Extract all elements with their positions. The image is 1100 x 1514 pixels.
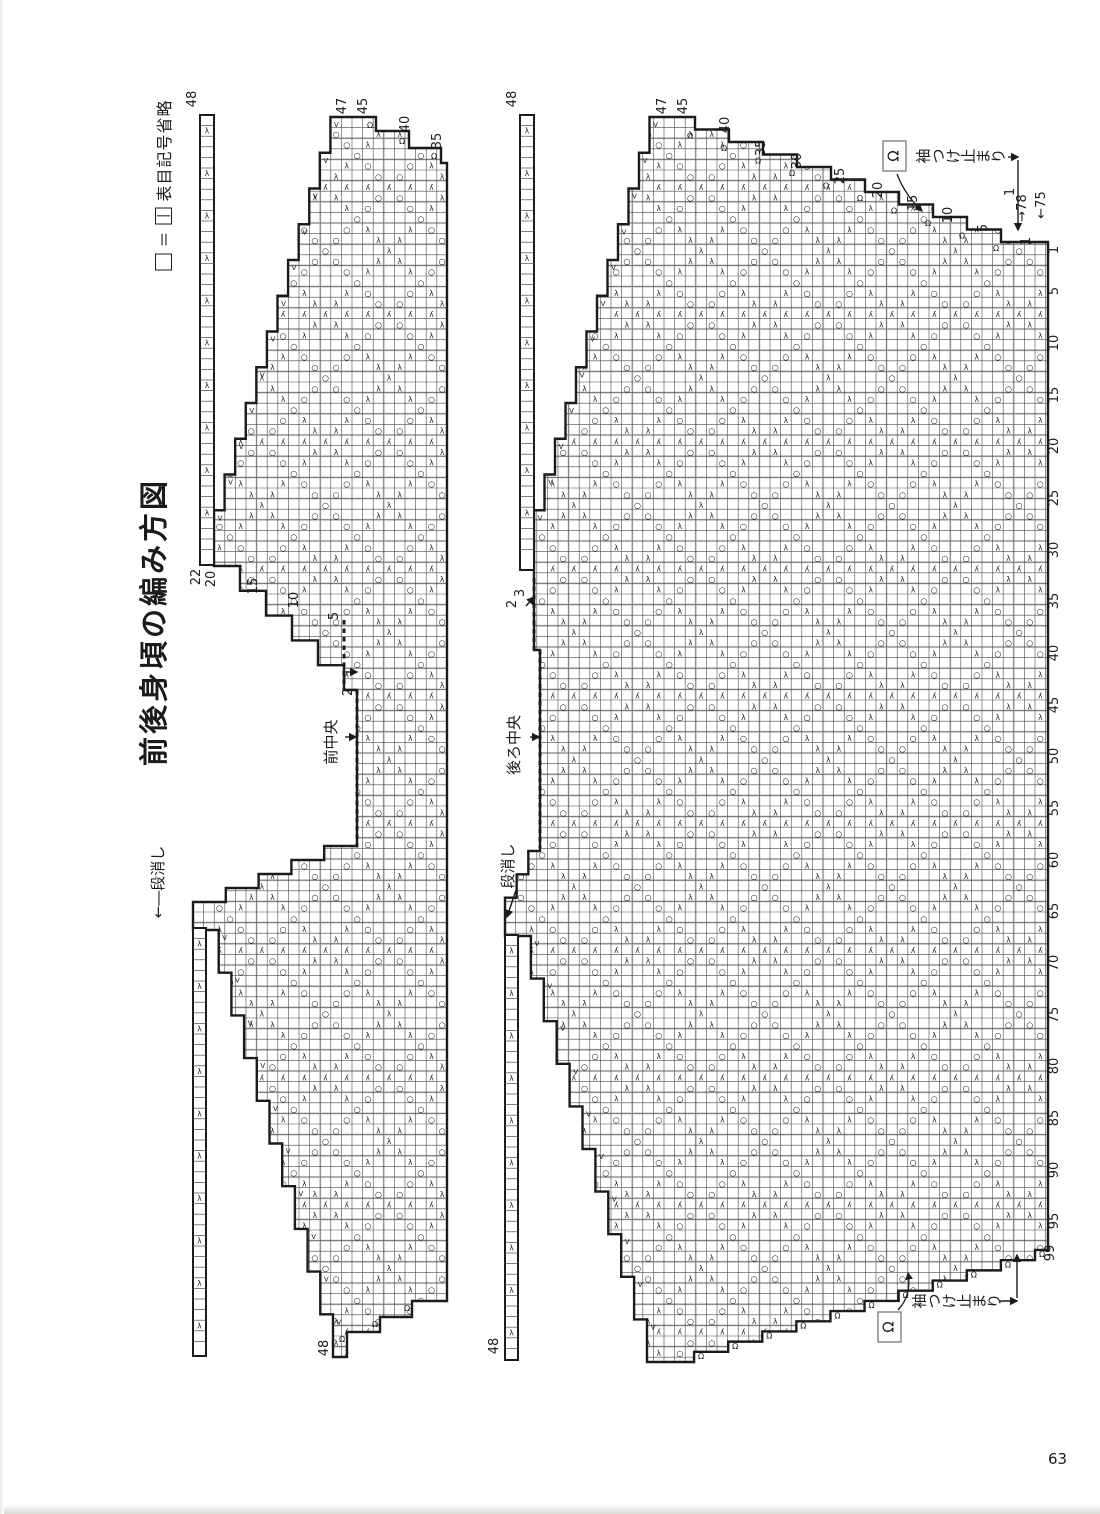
svg-text:λ: λ <box>688 872 693 881</box>
svg-text:λ: λ <box>207 1063 212 1072</box>
svg-text:λ: λ <box>688 257 693 266</box>
svg-text:λ: λ <box>932 904 937 913</box>
svg-text:λ: λ <box>1027 1338 1032 1347</box>
svg-text:λ: λ <box>344 1222 349 1231</box>
svg-text:○: ○ <box>1037 649 1044 658</box>
chart-number-label: 45 <box>356 98 371 115</box>
svg-text:○: ○ <box>963 681 970 690</box>
svg-text:○: ○ <box>1026 1126 1033 1135</box>
svg-text:○: ○ <box>290 406 297 415</box>
svg-text:ʎ: ʎ <box>1038 692 1043 701</box>
svg-text:○: ○ <box>920 1360 927 1369</box>
svg-text:λ: λ <box>249 384 254 393</box>
svg-text:ʎ: ʎ <box>635 565 640 574</box>
svg-text:λ: λ <box>561 512 566 521</box>
svg-text:λ: λ <box>561 893 566 902</box>
svg-text:○: ○ <box>751 745 758 754</box>
chart-number-label: 40 <box>718 117 733 134</box>
svg-text:○: ○ <box>740 225 747 234</box>
svg-text:λ: λ <box>614 798 619 807</box>
svg-text:λ: λ <box>953 501 958 510</box>
svg-text:ʎ: ʎ <box>408 819 413 828</box>
svg-text:ʎ: ʎ <box>217 183 222 192</box>
svg-text:○: ○ <box>417 660 424 669</box>
svg-text:○: ○ <box>354 406 361 415</box>
svg-text:○: ○ <box>645 384 652 393</box>
svg-text:○: ○ <box>528 777 535 786</box>
svg-text:○: ○ <box>973 543 980 552</box>
svg-text:λ: λ <box>911 967 916 976</box>
scan-edge-shadow <box>0 1504 1100 1514</box>
svg-text:○: ○ <box>216 141 223 150</box>
svg-text:λ: λ <box>964 512 969 521</box>
svg-text:ʎ: ʎ <box>508 310 513 319</box>
svg-text:○: ○ <box>539 342 546 351</box>
svg-text:○: ○ <box>719 1095 726 1104</box>
svg-text:○: ○ <box>719 543 726 552</box>
svg-text:○: ○ <box>888 755 895 764</box>
svg-text:ʎ: ʎ <box>868 565 873 574</box>
svg-text:○: ○ <box>899 490 906 499</box>
svg-text:λ: λ <box>625 1190 630 1199</box>
svg-text:λ: λ <box>943 1275 948 1284</box>
svg-text:○: ○ <box>963 321 970 330</box>
svg-text:λ: λ <box>709 363 714 372</box>
svg-text:○: ○ <box>1005 384 1012 393</box>
svg-text:ʎ: ʎ <box>699 310 704 319</box>
svg-text:ʎ: ʎ <box>868 437 873 446</box>
svg-text:ʎ: ʎ <box>366 1073 371 1082</box>
svg-text:ʎ: ʎ <box>656 1073 661 1082</box>
svg-text:λ: λ <box>784 967 789 976</box>
svg-text:○: ○ <box>364 1052 371 1061</box>
svg-text:ʎ: ʎ <box>911 183 916 192</box>
svg-text:ʎ: ʎ <box>550 1328 555 1337</box>
svg-text:λ: λ <box>964 490 969 499</box>
svg-text:○: ○ <box>645 766 652 775</box>
svg-text:○: ○ <box>1026 766 1033 775</box>
svg-text:○: ○ <box>517 893 524 902</box>
svg-text:○: ○ <box>931 1095 938 1104</box>
svg-text:○: ○ <box>846 840 853 849</box>
svg-text:○: ○ <box>343 353 350 362</box>
svg-text:ʎ: ʎ <box>614 310 619 319</box>
svg-text:λ: λ <box>699 755 704 764</box>
svg-text:λ: λ <box>815 872 820 881</box>
svg-text:○: ○ <box>248 1190 255 1199</box>
svg-text:λ: λ <box>1027 808 1032 817</box>
svg-text:○: ○ <box>439 1020 446 1029</box>
svg-text:○: ○ <box>248 1317 255 1326</box>
svg-text:λ: λ <box>302 162 307 171</box>
increase-mark: V <box>547 983 552 991</box>
svg-text:ʎ: ʎ <box>323 437 328 446</box>
svg-text:○: ○ <box>708 172 715 181</box>
svg-text:λ: λ <box>678 353 683 362</box>
chart-number-label: 65 <box>1047 903 1062 920</box>
svg-text:○: ○ <box>417 1105 424 1114</box>
svg-text:ʎ: ʎ <box>656 819 661 828</box>
svg-text:λ: λ <box>197 1067 202 1076</box>
svg-text:λ: λ <box>1027 936 1032 945</box>
svg-text:ʎ: ʎ <box>762 1201 767 1210</box>
svg-text:○: ○ <box>539 1169 546 1178</box>
svg-text:λ: λ <box>344 331 349 340</box>
svg-text:λ: λ <box>397 999 402 1008</box>
svg-text:λ: λ <box>720 1243 725 1252</box>
svg-text:λ: λ <box>879 957 884 966</box>
svg-text:○: ○ <box>301 904 308 913</box>
svg-text:λ: λ <box>646 427 651 436</box>
svg-text:○: ○ <box>729 1105 736 1114</box>
svg-text:λ: λ <box>678 1285 683 1294</box>
svg-text:λ: λ <box>943 1148 948 1157</box>
svg-text:λ: λ <box>614 925 619 934</box>
svg-text:○: ○ <box>1026 1020 1033 1029</box>
svg-text:λ: λ <box>837 766 842 775</box>
svg-text:○: ○ <box>687 575 694 584</box>
svg-text:λ: λ <box>249 1254 254 1263</box>
svg-text:λ: λ <box>900 830 905 839</box>
svg-text:λ: λ <box>302 840 307 849</box>
svg-text:λ: λ <box>826 119 831 128</box>
svg-text:ʎ: ʎ <box>366 692 371 701</box>
svg-text:○: ○ <box>899 872 906 881</box>
svg-text:○: ○ <box>857 914 864 923</box>
svg-text:λ: λ <box>525 127 530 136</box>
svg-text:○: ○ <box>311 1148 318 1157</box>
svg-text:λ: λ <box>281 480 286 489</box>
svg-text:○: ○ <box>793 660 800 669</box>
svg-text:ʎ: ʎ <box>238 1201 243 1210</box>
increase-mark: V <box>651 1323 656 1331</box>
svg-text:○: ○ <box>1026 872 1033 881</box>
svg-text:○: ○ <box>676 289 683 298</box>
svg-text:○: ○ <box>216 353 223 362</box>
svg-text:○: ○ <box>205 618 212 627</box>
svg-text:○: ○ <box>676 840 683 849</box>
svg-text:○: ○ <box>623 1148 630 1157</box>
svg-text:○: ○ <box>984 278 991 287</box>
svg-text:○: ○ <box>878 745 885 754</box>
svg-text:λ: λ <box>784 416 789 425</box>
svg-text:○: ○ <box>417 278 424 287</box>
svg-text:○: ○ <box>623 236 630 245</box>
svg-text:○: ○ <box>941 957 948 966</box>
svg-text:○: ○ <box>417 1232 424 1241</box>
svg-text:λ: λ <box>625 808 630 817</box>
svg-text:ʎ: ʎ <box>429 565 434 574</box>
svg-text:λ: λ <box>281 989 286 998</box>
svg-text:○: ○ <box>1037 1116 1044 1125</box>
svg-text:○: ○ <box>857 1296 864 1305</box>
svg-text:ʎ: ʎ <box>344 1201 349 1210</box>
svg-text:λ: λ <box>720 734 725 743</box>
svg-text:ʎ: ʎ <box>953 183 958 192</box>
svg-text:λ: λ <box>205 424 210 433</box>
svg-text:○: ○ <box>899 257 906 266</box>
svg-text:λ: λ <box>387 1264 392 1273</box>
svg-text:○: ○ <box>857 406 864 415</box>
svg-text:λ: λ <box>525 466 530 475</box>
svg-text:ʎ: ʎ <box>508 819 513 828</box>
svg-text:○: ○ <box>782 480 789 489</box>
svg-text:λ: λ <box>238 1031 243 1040</box>
svg-text:○: ○ <box>729 1232 736 1241</box>
svg-text:λ: λ <box>953 1264 958 1273</box>
svg-text:ʎ: ʎ <box>635 1328 640 1337</box>
svg-text:λ: λ <box>932 777 937 786</box>
svg-text:λ: λ <box>784 1222 789 1231</box>
svg-text:λ: λ <box>593 1116 598 1125</box>
svg-text:○: ○ <box>354 1042 361 1051</box>
svg-text:λ: λ <box>519 702 524 711</box>
svg-text:○: ○ <box>645 257 652 266</box>
bindoff-mark: Ω <box>789 169 795 178</box>
increase-mark: V <box>611 264 616 272</box>
svg-text:○: ○ <box>708 957 715 966</box>
svg-text:○: ○ <box>793 215 800 224</box>
svg-text:ʎ: ʎ <box>678 1328 683 1337</box>
svg-text:ʎ: ʎ <box>805 183 810 192</box>
svg-text:λ: λ <box>996 289 1001 298</box>
svg-text:λ: λ <box>646 702 651 711</box>
svg-text:ʎ: ʎ <box>238 819 243 828</box>
svg-text:○: ○ <box>205 766 212 775</box>
svg-text:λ: λ <box>1038 925 1043 934</box>
svg-text:○: ○ <box>973 671 980 680</box>
svg-text:○: ○ <box>899 1148 906 1157</box>
chart-number-label: 48 <box>185 91 200 108</box>
svg-text:○: ○ <box>613 353 620 362</box>
svg-text:○: ○ <box>602 1042 609 1051</box>
svg-text:λ: λ <box>656 586 661 595</box>
svg-text:○: ○ <box>687 1338 694 1347</box>
svg-text:○: ○ <box>984 724 991 733</box>
svg-text:○: ○ <box>857 1169 864 1178</box>
svg-text:λ: λ <box>217 1052 222 1061</box>
svg-text:ʎ: ʎ <box>826 819 831 828</box>
svg-text:○: ○ <box>814 830 821 839</box>
svg-text:○: ○ <box>814 427 821 436</box>
svg-text:○: ○ <box>1016 501 1023 510</box>
svg-text:λ: λ <box>408 1243 413 1252</box>
svg-text:λ: λ <box>344 459 349 468</box>
svg-text:○: ○ <box>333 384 340 393</box>
svg-text:○: ○ <box>941 1338 948 1347</box>
svg-text:○: ○ <box>237 416 244 425</box>
svg-text:○: ○ <box>1026 257 1033 266</box>
increase-mark: V <box>292 264 297 272</box>
svg-text:λ: λ <box>826 374 831 383</box>
svg-text:ʎ: ʎ <box>699 565 704 574</box>
svg-text:○: ○ <box>782 861 789 870</box>
svg-text:λ: λ <box>709 384 714 393</box>
increase-mark: V <box>311 1233 316 1241</box>
svg-text:λ: λ <box>625 1211 630 1220</box>
svg-text:○: ○ <box>984 406 991 415</box>
svg-text:ʎ: ʎ <box>217 1073 222 1082</box>
svg-text:ʎ: ʎ <box>847 437 852 446</box>
svg-text:λ: λ <box>440 702 445 711</box>
svg-text:λ: λ <box>974 268 979 277</box>
svg-text:○: ○ <box>417 978 424 987</box>
svg-text:○: ○ <box>396 830 403 839</box>
svg-text:○: ○ <box>602 215 609 224</box>
svg-text:○: ○ <box>602 342 609 351</box>
increase-mark: V <box>302 228 307 236</box>
svg-text:○: ○ <box>931 1349 938 1358</box>
svg-text:○: ○ <box>666 1232 673 1241</box>
svg-text:○: ○ <box>1047 1360 1054 1369</box>
svg-text:○: ○ <box>364 1179 371 1188</box>
increase-mark: V <box>538 514 543 522</box>
svg-text:○: ○ <box>269 1317 276 1326</box>
svg-text:λ: λ <box>197 1152 202 1161</box>
svg-text:λ: λ <box>656 1307 661 1316</box>
svg-text:λ: λ <box>646 957 651 966</box>
svg-text:λ: λ <box>964 1148 969 1157</box>
svg-text:λ: λ <box>847 395 852 404</box>
svg-text:λ: λ <box>996 671 1001 680</box>
svg-text:○: ○ <box>396 1338 403 1347</box>
svg-text:λ: λ <box>561 363 566 372</box>
chart-number-label: 47 <box>335 98 350 115</box>
svg-text:λ: λ <box>1006 1084 1011 1093</box>
svg-text:λ: λ <box>720 904 725 913</box>
svg-text:○: ○ <box>867 861 874 870</box>
svg-text:○: ○ <box>623 363 630 372</box>
svg-text:○: ○ <box>290 469 297 478</box>
svg-text:λ: λ <box>582 893 587 902</box>
svg-text:○: ○ <box>973 1095 980 1104</box>
svg-text:λ: λ <box>509 1116 514 1125</box>
svg-text:λ: λ <box>366 649 371 658</box>
svg-text:○: ○ <box>528 904 535 913</box>
svg-text:ʎ: ʎ <box>784 310 789 319</box>
svg-text:○: ○ <box>396 1190 403 1199</box>
svg-text:○: ○ <box>729 978 736 987</box>
svg-text:○: ○ <box>899 639 906 648</box>
svg-text:λ: λ <box>260 628 265 637</box>
svg-text:λ: λ <box>270 618 275 627</box>
bindoff-mark: Ω <box>993 244 999 253</box>
svg-text:○: ○ <box>1037 395 1044 404</box>
svg-text:λ: λ <box>709 766 714 775</box>
svg-text:ʎ: ʎ <box>593 1328 598 1337</box>
svg-text:○: ○ <box>216 1285 223 1294</box>
svg-text:○: ○ <box>973 798 980 807</box>
svg-text:○: ○ <box>814 1084 821 1093</box>
svg-text:○: ○ <box>793 1360 800 1369</box>
svg-text:○: ○ <box>835 1063 842 1072</box>
svg-text:λ: λ <box>964 618 969 627</box>
increase-mark: V <box>218 514 223 522</box>
svg-text:λ: λ <box>625 172 630 181</box>
svg-text:○: ○ <box>751 490 758 499</box>
svg-text:○: ○ <box>751 384 758 393</box>
svg-text:○: ○ <box>248 194 255 203</box>
svg-text:λ: λ <box>197 1279 202 1288</box>
svg-text:○: ○ <box>973 586 980 595</box>
svg-text:λ: λ <box>334 554 339 563</box>
svg-text:ʎ: ʎ <box>953 310 958 319</box>
svg-text:λ: λ <box>741 459 746 468</box>
svg-text:λ: λ <box>344 840 349 849</box>
svg-text:○: ○ <box>729 851 736 860</box>
svg-text:λ: λ <box>1038 331 1043 340</box>
svg-text:○: ○ <box>227 596 234 605</box>
svg-text:ʎ: ʎ <box>868 1073 873 1082</box>
svg-text:○: ○ <box>751 893 758 902</box>
svg-text:λ: λ <box>302 798 307 807</box>
svg-text:λ: λ <box>344 289 349 298</box>
svg-text:λ: λ <box>879 321 884 330</box>
svg-text:○: ○ <box>375 300 382 309</box>
svg-text:λ: λ <box>270 766 275 775</box>
svg-text:○: ○ <box>1037 989 1044 998</box>
svg-text:λ: λ <box>678 1031 683 1040</box>
svg-text:λ: λ <box>582 999 587 1008</box>
svg-text:○: ○ <box>931 331 938 340</box>
svg-text:○: ○ <box>1005 1148 1012 1157</box>
increase-mark: V <box>222 934 227 942</box>
svg-text:λ: λ <box>964 257 969 266</box>
svg-text:○: ○ <box>835 427 842 436</box>
svg-text:λ: λ <box>1006 1190 1011 1199</box>
svg-text:○: ○ <box>549 798 556 807</box>
svg-text:λ: λ <box>805 777 810 786</box>
svg-text:λ: λ <box>943 130 948 139</box>
svg-text:ʎ: ʎ <box>614 946 619 955</box>
svg-text:λ: λ <box>741 162 746 171</box>
svg-text:λ: λ <box>249 1275 254 1284</box>
svg-text:○: ○ <box>322 501 329 510</box>
svg-text:○: ○ <box>994 861 1001 870</box>
svg-text:○: ○ <box>751 512 758 521</box>
svg-text:ʎ: ʎ <box>1017 437 1022 446</box>
svg-text:λ: λ <box>741 798 746 807</box>
svg-text:λ: λ <box>773 1317 778 1326</box>
svg-text:ʎ: ʎ <box>974 1328 979 1337</box>
svg-text:ʎ: ʎ <box>387 1328 392 1337</box>
svg-text:λ: λ <box>197 1109 202 1118</box>
svg-text:λ: λ <box>879 936 884 945</box>
svg-text:λ: λ <box>1006 681 1011 690</box>
svg-text:○: ○ <box>269 702 276 711</box>
svg-text:λ: λ <box>656 840 661 849</box>
increase-mark: V <box>281 300 286 308</box>
svg-text:○: ○ <box>994 777 1001 786</box>
increase-mark: V <box>643 157 648 165</box>
svg-text:ʎ: ʎ <box>953 565 958 574</box>
svg-text:○: ○ <box>761 883 768 892</box>
svg-text:○: ○ <box>428 607 435 616</box>
svg-text:λ: λ <box>678 777 683 786</box>
svg-text:○: ○ <box>602 596 609 605</box>
svg-text:λ: λ <box>964 893 969 902</box>
svg-text:λ: λ <box>217 1222 222 1231</box>
svg-text:○: ○ <box>846 459 853 468</box>
svg-text:λ: λ <box>582 618 587 627</box>
svg-text:○: ○ <box>994 353 1001 362</box>
svg-text:○: ○ <box>1016 374 1023 383</box>
svg-text:ʎ: ʎ <box>429 1073 434 1082</box>
svg-text:λ: λ <box>815 1275 820 1284</box>
chart-number-label: →78 <box>1015 194 1030 221</box>
bindoff-mark: Ω <box>891 207 897 216</box>
svg-text:ʎ: ʎ <box>429 310 434 319</box>
